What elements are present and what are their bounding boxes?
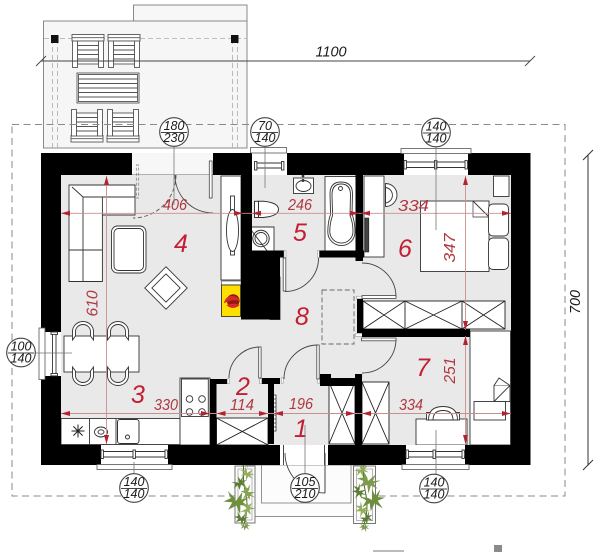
svg-text:334: 334 (398, 198, 429, 215)
svg-text:5: 5 (293, 219, 307, 247)
svg-text:246: 246 (287, 197, 312, 214)
svg-text:210: 210 (294, 487, 316, 501)
svg-text:230: 230 (163, 131, 185, 145)
svg-text:4: 4 (174, 230, 188, 258)
svg-text:140: 140 (255, 131, 276, 145)
svg-text:7: 7 (416, 354, 431, 382)
svg-text:251: 251 (442, 358, 459, 385)
svg-text:1100: 1100 (316, 45, 347, 61)
svg-text:334: 334 (399, 397, 423, 414)
svg-text:610: 610 (85, 290, 102, 316)
svg-text:347: 347 (442, 232, 459, 262)
svg-text:140: 140 (124, 487, 145, 501)
svg-text:6: 6 (398, 235, 412, 263)
svg-text:196: 196 (289, 396, 313, 413)
svg-text:1: 1 (294, 415, 308, 443)
svg-text:330: 330 (154, 397, 178, 414)
svg-text:140: 140 (424, 488, 445, 502)
svg-text:406: 406 (163, 197, 187, 214)
svg-text:8: 8 (295, 303, 309, 331)
svg-text:3: 3 (131, 381, 145, 409)
svg-text:700: 700 (568, 290, 584, 314)
svg-text:2: 2 (235, 373, 250, 401)
svg-text:140: 140 (426, 132, 447, 146)
svg-text:140: 140 (11, 352, 32, 366)
